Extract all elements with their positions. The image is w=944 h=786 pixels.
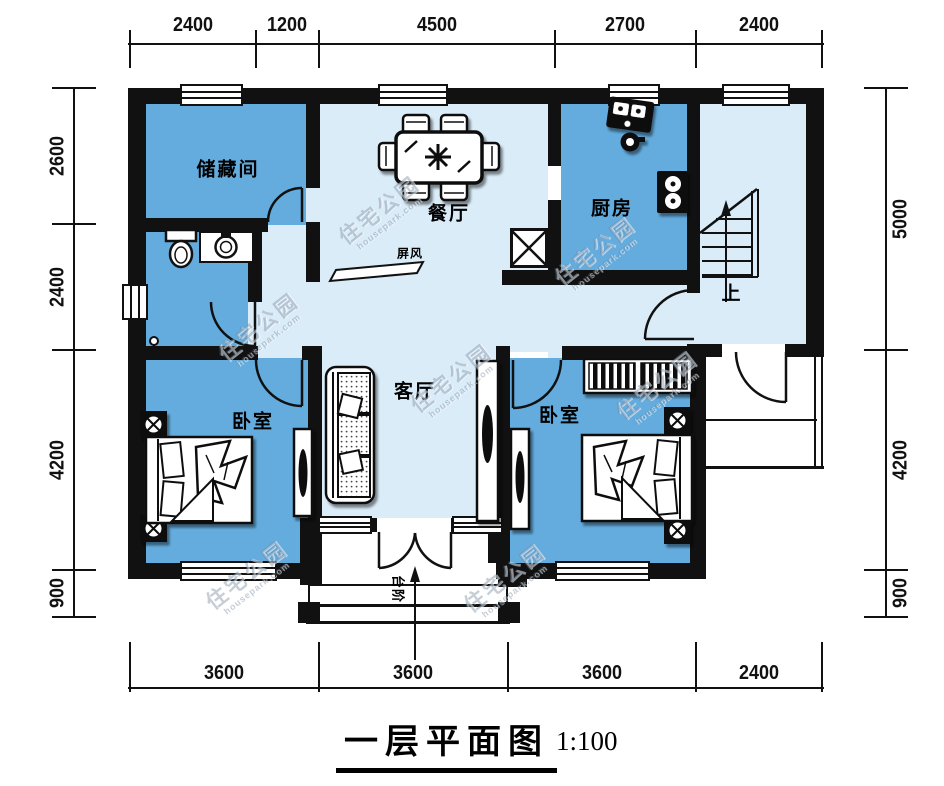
plan-title: 一层平面图 (336, 714, 557, 773)
label-storage: 储藏间 (196, 155, 259, 182)
bedroom-left-fill (146, 358, 308, 565)
dim-tick (864, 349, 908, 351)
door-side-porch (736, 352, 786, 402)
wall-kitchen-stair (687, 104, 700, 293)
dim-line-top (128, 43, 824, 45)
wall-storage-right-a (306, 104, 320, 188)
dim-tick (554, 30, 556, 68)
door-entry-double (379, 532, 451, 568)
wall-storage-right-b (306, 222, 320, 282)
dim-tick (52, 223, 96, 225)
dim-label: 2400 (47, 267, 70, 307)
wall-pier-left (300, 532, 322, 563)
dim-tick (864, 87, 908, 89)
window-entry-left (318, 516, 372, 534)
side-porch-bottom-edge (706, 466, 824, 469)
dim-tick (864, 569, 908, 571)
dim-tick (52, 569, 96, 571)
window-storage-top (180, 84, 243, 106)
porch-pier-bl (298, 602, 320, 623)
label-entry-steps: 台阶 (390, 575, 409, 603)
dim-label: 4200 (47, 440, 70, 480)
dim-tick (864, 616, 908, 618)
dim-tick (695, 30, 697, 68)
label-dining: 餐厅 (428, 199, 470, 226)
dim-label: 2400 (739, 662, 779, 685)
dim-tick (507, 642, 509, 692)
dim-label: 2400 (739, 14, 779, 37)
side-porch-divider (706, 419, 817, 421)
stair-hall-fill (700, 104, 806, 344)
dim-label: 3600 (582, 662, 622, 685)
wall-dining-kitchen-a (548, 104, 561, 160)
dim-label: 2400 (173, 14, 213, 37)
dim-label: 2600 (47, 136, 70, 176)
duct-shaft (510, 228, 548, 268)
dim-line-right (885, 88, 887, 618)
window-entry-right (452, 516, 503, 534)
stair-door-gap (687, 293, 700, 344)
dim-tick (318, 642, 320, 692)
porch-pier-tl (300, 563, 322, 585)
dim-tick (129, 642, 131, 692)
dim-label: 2700 (605, 14, 645, 37)
wall-stairhall-bottom-b (785, 344, 824, 357)
window-bedR-bottom (555, 561, 650, 581)
window-stair-top (722, 84, 790, 106)
dim-label: 4500 (417, 14, 457, 37)
side-porch-rail-2 (821, 357, 823, 467)
dim-tick (52, 349, 96, 351)
dim-tick (52, 616, 96, 618)
label-screen: 屏风 (397, 245, 423, 262)
porch-side-left (308, 585, 310, 605)
dim-label: 5000 (890, 199, 913, 239)
dim-label: 900 (890, 578, 913, 608)
entry-door-gap (377, 518, 451, 532)
wall-storage-bottom (146, 218, 268, 232)
dim-label: 1200 (267, 14, 307, 37)
window-dining-top (378, 84, 448, 106)
window-bathroom-left (122, 284, 148, 320)
label-bedroom-left: 卧室 (232, 407, 274, 434)
dim-line-bottom (128, 687, 824, 689)
wall-left (128, 88, 146, 579)
plan-scale: 1:100 (556, 726, 618, 757)
side-porch-rail-1 (814, 357, 816, 467)
dim-label: 4200 (890, 440, 913, 480)
window-kitchen-top (608, 84, 660, 106)
dim-tick (821, 642, 823, 692)
dim-tick (695, 642, 697, 692)
dim-label: 3600 (204, 662, 244, 685)
dim-tick (255, 30, 257, 68)
dim-line-left (73, 88, 75, 618)
dim-tick (52, 87, 96, 89)
dim-tick (821, 30, 823, 68)
floor-plan-page: 储藏间 餐厅 厨房 客厅 卧室 卧室 屏风 上 台阶 住宅公园housepark… (0, 0, 944, 786)
label-stairs-up: 上 (721, 279, 740, 306)
dim-label: 3600 (393, 662, 433, 685)
label-bedroom-right: 卧室 (539, 401, 581, 428)
dim-tick (129, 30, 131, 68)
dim-label: 900 (47, 578, 70, 608)
wall-bath-right (248, 232, 262, 302)
wall-right (806, 88, 824, 357)
wall-dining-kitchen-jamb1 (548, 160, 561, 166)
wall-dining-kitchen-b (548, 206, 561, 270)
dim-tick (318, 30, 320, 68)
